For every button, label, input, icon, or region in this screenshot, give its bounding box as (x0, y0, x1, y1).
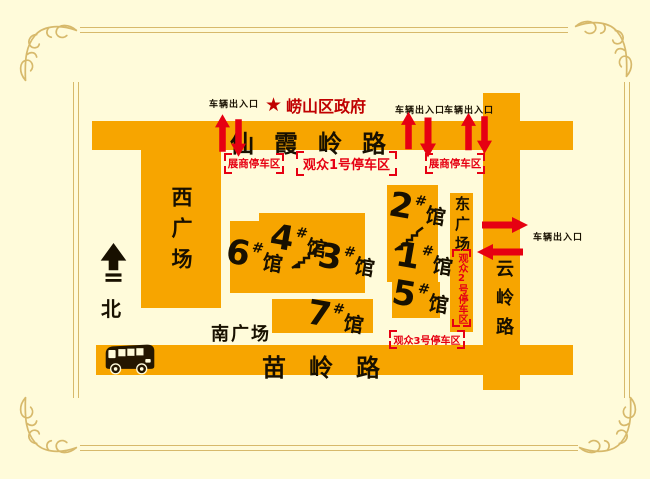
bracket-corner (425, 166, 433, 174)
bracket-corner (477, 153, 485, 161)
hall-2-unit: 馆 (423, 203, 447, 230)
frame-line-bottom (80, 445, 578, 451)
arrow-up-icon (215, 113, 230, 153)
bracket-corner (452, 319, 460, 327)
bracket-corner (425, 153, 433, 161)
government-landmark: ★ 崂山区政府 (265, 93, 366, 117)
arrow-up-icon (461, 112, 476, 151)
bus-icon (101, 341, 159, 377)
bracket-corner (276, 166, 284, 174)
visitor-parking-1-text: 观众1号停车区 (303, 154, 390, 173)
visitor-parking-3-text: 观众3号停车区 (394, 332, 461, 347)
hall-1-unit: 馆 (430, 253, 454, 280)
corner-flourish-top-left (16, 20, 78, 82)
bracket-corner (457, 330, 465, 338)
visitor-parking-2-text: 观众2号停车区 (454, 253, 469, 324)
west-square-label: 西广场 (166, 186, 196, 279)
south-square-label: 南广场 (211, 320, 271, 346)
bracket-corner (457, 341, 465, 349)
exhibitor-parking-label-west: 展商停车区 (225, 154, 283, 173)
bracket-corner (296, 168, 304, 176)
corner-flourish-top-right (574, 16, 636, 78)
bracket-corner (389, 168, 397, 176)
corner-flourish-bottom-left (16, 396, 78, 458)
stairs-icon (291, 243, 321, 269)
bracket-corner (452, 249, 460, 257)
bracket-corner (389, 151, 397, 159)
bracket-corner (296, 151, 304, 159)
stairs-icon (394, 225, 424, 251)
frame-line-top (80, 27, 568, 33)
exhibitor-parking-label-east: 展商停车区 (426, 154, 484, 173)
exhibitor-parking-text: 展商停车区 (429, 156, 482, 171)
arrow-right-icon (482, 217, 528, 233)
hall-5-unit: 馆 (426, 291, 450, 318)
star-icon: ★ (265, 96, 282, 115)
arrow-down-icon (477, 115, 492, 155)
arrow-up-icon (401, 110, 416, 151)
bracket-corner (224, 153, 232, 161)
visitor-parking-1-label: 观众1号停车区 (297, 152, 396, 175)
miaoling-road-label: 苗岭路 (262, 348, 403, 383)
bracket-corner (389, 330, 397, 338)
north-arrow-icon (97, 243, 130, 283)
bracket-corner (276, 153, 284, 161)
bracket-corner (389, 341, 397, 349)
frame-line-right (624, 82, 630, 398)
frame-line-left (73, 82, 79, 398)
north-label: 北 (101, 293, 121, 322)
venue-traffic-map: 仙霞岭路 苗岭路 云岭路 西广场 东广场 南广场 6#馆 4#馆 3#馆 2#馆… (0, 0, 650, 479)
corner-flourish-bottom-right (578, 396, 640, 458)
bracket-corner (477, 166, 485, 174)
exhibitor-parking-text: 展商停车区 (228, 156, 281, 171)
bracket-corner (463, 249, 471, 257)
bracket-corner (463, 319, 471, 327)
hall-3-unit: 馆 (352, 254, 376, 281)
vehicle-entrance-label: 车辆出入口 (209, 97, 259, 110)
hall-6-number: 6 (223, 231, 253, 275)
yunling-road-label: 云岭路 (490, 259, 516, 346)
bracket-corner (224, 166, 232, 174)
vehicle-entrance-label: 车辆出入口 (533, 230, 583, 243)
visitor-parking-3-label: 观众3号停车区 (390, 331, 464, 348)
hall-7-label: 7#馆 (304, 292, 367, 341)
hall-7-unit: 馆 (341, 311, 365, 338)
arrow-left-icon (477, 244, 523, 260)
government-landmark-label: 崂山区政府 (286, 93, 366, 117)
visitor-parking-2-label: 观众2号停车区 (453, 250, 470, 326)
arrow-down-icon (231, 118, 246, 158)
